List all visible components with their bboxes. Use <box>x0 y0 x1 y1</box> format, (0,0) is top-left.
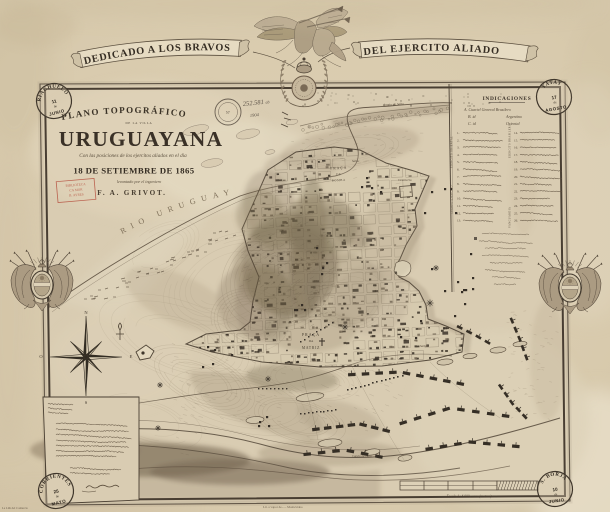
svg-text:4.: 4. <box>457 153 460 157</box>
svg-text:16.: 16. <box>514 146 518 150</box>
svg-text:Salto: Salto <box>352 159 359 163</box>
svg-text:1904: 1904 <box>250 112 260 118</box>
svg-text:9.: 9. <box>457 189 460 193</box>
svg-text:B. id: B. id <box>468 114 477 119</box>
svg-text:19.: 19. <box>514 168 518 172</box>
svg-text:levantado por el ingeniero: levantado por el ingeniero <box>117 179 161 184</box>
svg-text:20.: 20. <box>514 175 518 179</box>
svg-text:24.: 24. <box>514 204 518 208</box>
svg-text:14.: 14. <box>514 131 518 135</box>
svg-text:12.: 12. <box>457 211 461 215</box>
svg-text:La Lith del Comercio: La Lith del Comercio <box>2 506 28 510</box>
svg-text:3.: 3. <box>457 146 460 150</box>
svg-text:BOMBA: BOMBA <box>332 178 346 183</box>
svg-text:EJERCITO ORIENTAL: EJERCITO ORIENTAL <box>451 136 454 168</box>
svg-text:DE LA VILLA: DE LA VILLA <box>125 121 152 125</box>
svg-text:INDICACIONES: INDICACIONES <box>483 96 532 102</box>
svg-text:VANGUARDIA: VANGUARDIA <box>509 207 512 228</box>
svg-text:5.: 5. <box>457 160 460 164</box>
svg-text:Capela da Vigia: Capela da Vigia <box>352 454 372 458</box>
svg-text:E: E <box>130 354 133 359</box>
svg-text:21.: 21. <box>514 182 518 186</box>
svg-text:Cemiterio: Cemiterio <box>398 178 412 182</box>
svg-text:F. A. GRIVOT.: F. A. GRIVOT. <box>97 189 166 197</box>
svg-text:6.: 6. <box>457 168 460 172</box>
svg-text:26.: 26. <box>514 219 518 223</box>
svg-text:22.: 22. <box>514 189 518 193</box>
svg-text:13.: 13. <box>457 219 461 223</box>
svg-text:A. Cuartel General Brasilero: A. Cuartel General Brasilero <box>463 107 511 112</box>
svg-text:C. id: C. id <box>468 121 477 126</box>
svg-text:DE: DE <box>336 172 341 176</box>
svg-text:11.: 11. <box>457 204 461 208</box>
svg-text:CUERPO EJERCITO: CUERPO EJERCITO <box>451 185 454 214</box>
svg-text:1.: 1. <box>457 131 460 135</box>
svg-text:2.: 2. <box>457 138 460 142</box>
svg-text:Sañga: Sañga <box>420 344 428 348</box>
svg-text:8.: 8. <box>457 182 460 186</box>
svg-text:17.: 17. <box>514 153 518 157</box>
svg-text:EJERCITO BRASILERO: EJERCITO BRASILERO <box>509 124 512 158</box>
svg-text:DA: DA <box>309 339 314 343</box>
svg-text:PRAÇA: PRAÇA <box>302 332 320 337</box>
svg-text:Argentino: Argentino <box>505 114 522 119</box>
svg-text:23.: 23. <box>514 197 518 201</box>
svg-text:URUGUAYANA: URUGUAYANA <box>59 127 224 151</box>
svg-text:15.: 15. <box>514 138 518 142</box>
svg-text:7.: 7. <box>457 175 460 179</box>
svg-text:MATRIZ: MATRIZ <box>302 346 320 350</box>
svg-text:Con las posiciones de los ejer: Con las posiciones de los ejercitos alia… <box>79 153 187 159</box>
svg-text:18 DE SETIEMBRE DE 1865: 18 DE SETIEMBRE DE 1865 <box>73 166 194 176</box>
svg-text:10.: 10. <box>457 197 461 201</box>
svg-text:18.: 18. <box>514 160 518 164</box>
svg-text:25.: 25. <box>514 211 518 215</box>
